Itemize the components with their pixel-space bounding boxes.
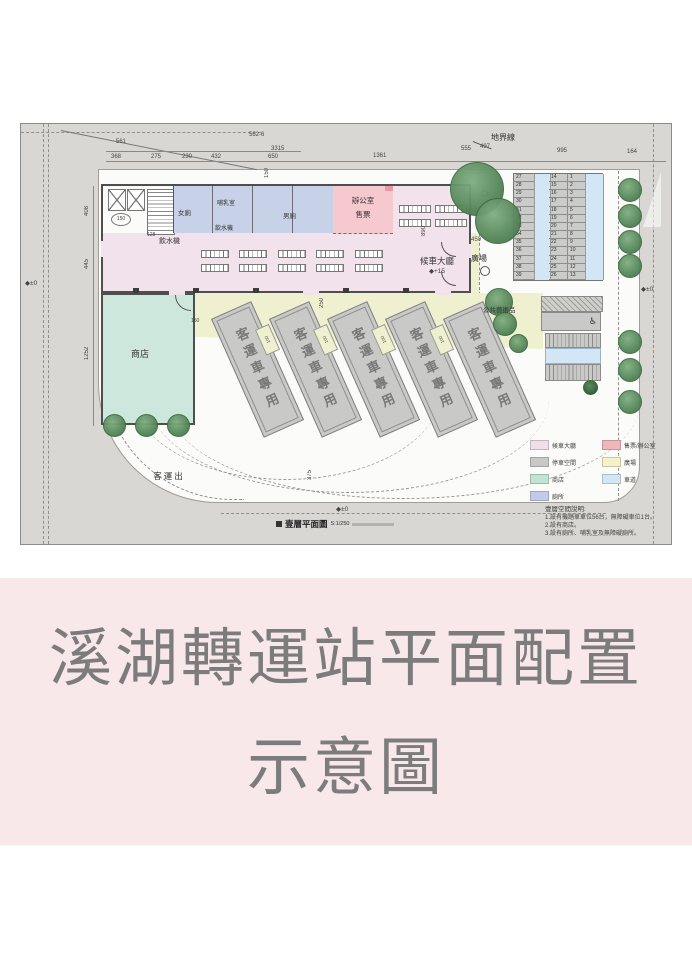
accessible-parking-bar: ♿ xyxy=(541,312,601,331)
dimension-label: 1361 xyxy=(373,153,386,160)
list-item: 1.設有機踏車車位56台，無障礙車位1台。 xyxy=(545,514,672,522)
legend-chip xyxy=(530,457,549,467)
seat-row-icon xyxy=(316,250,344,258)
notes: 壹層空間說明: 1.設有機踏車車位56台，無障礙車位1台。2.設有商店。3.設有… xyxy=(545,506,672,538)
list-item: 36 xyxy=(514,247,534,255)
legend-item: 售票/辦公室 xyxy=(602,440,670,450)
legend-item: 商店 xyxy=(530,474,598,484)
tree-icon xyxy=(135,414,158,437)
wall-line xyxy=(212,186,213,233)
dimension-label: 100 xyxy=(322,335,330,344)
elevator-icon xyxy=(108,189,126,211)
notes-heading: 壹層空間說明: xyxy=(545,506,672,514)
legend-chip xyxy=(602,474,621,484)
dimension-label: 275 xyxy=(151,154,161,161)
hatched-zone xyxy=(541,296,603,312)
road-centerline-left xyxy=(43,124,44,544)
legend-item: 停車空間 xyxy=(530,457,598,467)
legend: 候車大廳售票/辦公室停車空間廣場商店車道廁所 xyxy=(530,440,670,501)
door-arc-icon xyxy=(175,295,191,311)
scooter-parking-grid: 27282930313233343536373839 1415161718192… xyxy=(513,173,603,281)
tree-icon xyxy=(618,390,642,414)
nursing-room-label: 哺乳室 xyxy=(217,198,235,207)
dimension-label: 650 xyxy=(268,154,278,161)
plan-fineprint xyxy=(352,523,394,526)
column-mark xyxy=(253,288,259,293)
door-opening xyxy=(169,289,185,295)
legend-label: 廣場 xyxy=(624,458,636,467)
office-label: 辦公室 xyxy=(333,195,393,206)
shop-label: 商店 xyxy=(131,347,149,360)
tree-icon xyxy=(618,230,642,254)
list-item: 7 xyxy=(568,223,586,231)
legend-label: 廁所 xyxy=(552,492,564,501)
legend-label: 車道 xyxy=(624,475,636,484)
plan-titleblock: 壹層平面圖 S:1/250 xyxy=(276,518,394,530)
list-item: 20 xyxy=(549,223,567,231)
seat-row-icon xyxy=(278,264,306,272)
women-toilet-label: 女廁 xyxy=(178,207,191,217)
dimension-label: 250 xyxy=(319,294,325,308)
seat-row-icon xyxy=(316,264,344,272)
parking-column: 12345678910111213 xyxy=(567,174,586,280)
list-item: 3.設有廁所、哺乳室及無障礙廁所。 xyxy=(545,530,672,538)
legend-chip xyxy=(602,440,621,450)
office-corner-mark xyxy=(385,186,393,191)
legend-label: 商店 xyxy=(552,475,564,484)
dimension-label: 445 xyxy=(84,249,90,269)
list-item: 18 xyxy=(549,207,567,215)
seat-row-icon xyxy=(355,250,383,258)
legend-item: 候車大廳 xyxy=(530,440,598,450)
list-item: 38 xyxy=(514,264,534,272)
list-item: 22 xyxy=(549,239,567,247)
dimension-label: 890 xyxy=(421,222,427,236)
legend-chip xyxy=(530,474,549,484)
door-arc-icon xyxy=(441,271,456,286)
list-item: 2.設有商店。 xyxy=(545,522,672,530)
level-marker: ◆±0 xyxy=(336,506,348,513)
legend-item: 車道 xyxy=(602,474,670,484)
road-centerline-top xyxy=(21,132,261,133)
office-zone: 辦公室 售票 xyxy=(333,186,393,234)
list-item: 37 xyxy=(514,256,534,264)
list-item: 39 xyxy=(514,272,534,280)
column-mark xyxy=(193,288,199,293)
station-building: 150 120 128 女廁 哺乳室 男廁 飲水機 飲水機 辦公室 售票 xyxy=(101,184,471,293)
dimension-label: 555 xyxy=(461,146,471,153)
wheelchair-icon: ♿ xyxy=(589,316,597,327)
list-item: 27 xyxy=(514,174,534,182)
road-centerline-left2 xyxy=(48,124,49,544)
legend-chip xyxy=(530,440,549,450)
dimension-label: 150 xyxy=(191,318,199,325)
tree-icon xyxy=(618,358,642,382)
elevator-icon xyxy=(127,189,145,211)
dimension-label: 561 xyxy=(116,139,126,146)
seat-row-icon xyxy=(399,205,431,213)
seat-row-icon xyxy=(435,219,467,227)
dimension-label: 432 xyxy=(211,154,221,161)
dimension-label: 100 xyxy=(438,335,446,344)
list-item: 29 xyxy=(514,190,534,198)
dimension-label: 164 xyxy=(627,149,637,156)
legend-item: 廣場 xyxy=(602,457,670,467)
water-dispenser-label: 飲水機 xyxy=(215,223,233,232)
scooter-stall-strip xyxy=(545,364,601,381)
tree-icon xyxy=(618,178,642,202)
list-item: 16 xyxy=(549,190,567,198)
tree-icon xyxy=(493,312,517,336)
list-item: 2 xyxy=(568,182,586,190)
list-item: 9 xyxy=(568,239,586,247)
parking-column: 14151617181920212223242526 xyxy=(549,174,567,280)
parking-aisle xyxy=(585,174,604,280)
legend-chip xyxy=(602,457,621,467)
plan-scale: S:1/250 xyxy=(331,521,350,527)
seat-row-icon xyxy=(239,264,267,272)
shop-area: 商店 xyxy=(101,293,195,425)
column-mark xyxy=(343,288,349,293)
legend-item: 廁所 xyxy=(530,491,598,501)
list-item: 25 xyxy=(549,264,567,272)
wall-line xyxy=(252,186,253,233)
list-item: 24 xyxy=(549,256,567,264)
dimension-label: 128 xyxy=(147,232,155,239)
list-item: 19 xyxy=(549,215,567,223)
list-item: 15 xyxy=(549,182,567,190)
north-mark-icon xyxy=(276,521,282,527)
site-plan-drawing: 561 562-6 3315 368 275 230 432 650 1361 … xyxy=(20,123,672,545)
dimension-label: 562-6 xyxy=(249,132,264,139)
waiting-hall-label: 候車大廳 xyxy=(409,255,465,267)
dimension-label: 368 xyxy=(111,154,121,161)
scooter-stall-strip xyxy=(545,333,601,348)
seat-row-icon xyxy=(239,250,267,258)
tree-icon xyxy=(103,414,126,437)
page: 561 562-6 3315 368 275 230 432 650 1361 … xyxy=(0,0,692,960)
ticketing-label: 售票 xyxy=(333,209,393,220)
legend-label: 候車大廳 xyxy=(552,441,576,450)
legend-label: 售票/辦公室 xyxy=(624,441,656,450)
list-item: 10 xyxy=(568,247,586,255)
list-item: 21 xyxy=(549,231,567,239)
dimension-label: 230 xyxy=(182,154,192,161)
list-item: 14 xyxy=(549,174,567,182)
list-item: 26 xyxy=(549,272,567,280)
dimension-line xyxy=(93,186,94,426)
seat-row-icon xyxy=(201,250,229,258)
dimension-label: 1252 xyxy=(84,334,90,360)
tree-icon xyxy=(618,330,642,354)
level-marker: ◆±0 xyxy=(25,280,37,287)
dimension-label: 100 xyxy=(264,335,272,344)
notes-lines: 1.設有機踏車車位56台，無障礙車位1台。2.設有商店。3.設有廁所、哺乳室及無… xyxy=(545,514,672,538)
list-item: 8 xyxy=(568,231,586,239)
list-item: 30 xyxy=(514,198,534,206)
bus-exit-label: 客運出 xyxy=(139,470,199,482)
seat-row-icon xyxy=(355,264,383,272)
legend-chip xyxy=(530,491,549,501)
stairs-icon xyxy=(147,189,175,235)
list-item: 6 xyxy=(568,215,586,223)
circle-marker xyxy=(480,266,490,276)
boundary-line-label: 地界線 xyxy=(491,132,515,143)
water-dispenser-label: 飲水機 xyxy=(159,236,180,246)
column-mark xyxy=(133,288,139,293)
shrub-icon xyxy=(583,380,598,395)
list-item: 28 xyxy=(514,182,534,190)
list-item: 5 xyxy=(568,207,586,215)
level-marker: ◆±0 xyxy=(641,286,653,293)
door-opening xyxy=(303,289,319,295)
list-item: 35 xyxy=(514,239,534,247)
seat-row-icon xyxy=(278,250,306,258)
tree-icon xyxy=(475,198,521,244)
parking-aisle xyxy=(545,348,601,364)
dimension-label: 995 xyxy=(557,148,567,155)
list-item: 1 xyxy=(568,174,586,182)
list-item: 12 xyxy=(568,264,586,272)
tree-icon xyxy=(618,254,642,278)
dimension-label: 3315 xyxy=(271,146,284,153)
dimension-label: 100 xyxy=(380,335,388,344)
plan-title: 壹層平面圖 xyxy=(285,518,328,530)
list-item: 17 xyxy=(549,198,567,206)
banner-title-line2: 示意圖 xyxy=(247,717,445,808)
dimension-line xyxy=(106,161,666,162)
public-art-label: 公共藝術品 xyxy=(483,304,516,314)
legend-label: 停車空間 xyxy=(552,458,576,467)
list-item: 4 xyxy=(568,198,586,206)
dimension-label: 375 xyxy=(307,466,313,480)
road-slope-marker xyxy=(643,172,661,227)
tree-icon xyxy=(509,334,528,353)
banner-title-line1: 溪湖轉運站平面配置 xyxy=(49,608,643,699)
door-opening xyxy=(466,244,471,258)
list-item: 3 xyxy=(568,190,586,198)
restroom-zone xyxy=(173,186,335,233)
tree-icon xyxy=(167,414,190,437)
door-opening xyxy=(435,289,451,295)
dimension-label: 408 xyxy=(84,196,90,216)
list-item: 11 xyxy=(568,256,586,264)
dimension-label: 150 xyxy=(111,213,131,226)
column-mark xyxy=(403,288,409,293)
tree-icon xyxy=(618,204,642,228)
title-banner: 溪湖轉運站平面配置 示意圖 xyxy=(0,578,692,845)
list-item: 23 xyxy=(549,247,567,255)
list-item: 13 xyxy=(568,272,586,280)
door-opening xyxy=(101,241,106,257)
dimension-label: 150 xyxy=(264,166,270,178)
men-toilet-label: 男廁 xyxy=(283,210,296,220)
seat-row-icon xyxy=(201,264,229,272)
